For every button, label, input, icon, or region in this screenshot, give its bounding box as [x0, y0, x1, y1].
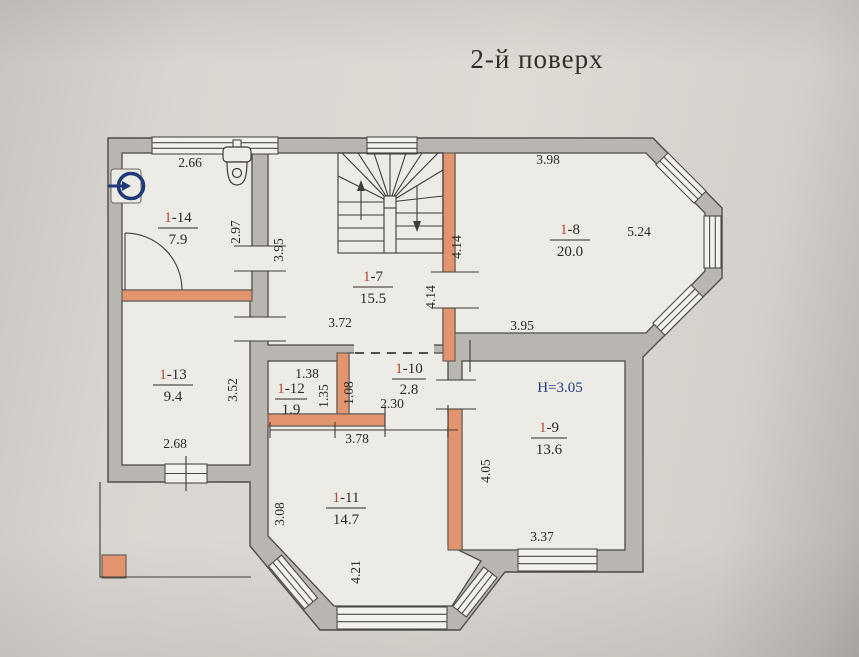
dim-room9-height: 4.05 — [478, 459, 493, 483]
svg-text:14.7: 14.7 — [333, 512, 360, 528]
svg-text:13.6: 13.6 — [536, 442, 563, 458]
dim-room13-width: 2.68 — [163, 436, 187, 451]
dim-room14-height: 2.97 — [228, 220, 243, 244]
dim-room12-height: 1.35 — [316, 384, 331, 408]
floor-plan-photo: 2-й поверх — [0, 0, 859, 657]
svg-text:2.8: 2.8 — [400, 382, 419, 398]
boiler-circle-arrow-icon — [108, 169, 144, 203]
dim-hall-height: 3.95 — [271, 238, 286, 262]
svg-text:1-14: 1-14 — [164, 210, 192, 226]
dim-room13-height: 3.52 — [225, 378, 240, 402]
svg-text:1.9: 1.9 — [282, 402, 301, 418]
dim-stair-wall-upper: 4.14 — [449, 235, 464, 259]
orange-wall-under-1-14 — [122, 290, 252, 301]
dim-room11-left-height: 3.08 — [272, 502, 287, 526]
dim-room8-width-top: 3.98 — [536, 152, 560, 167]
svg-text:1-8: 1-8 — [560, 222, 580, 238]
orange-wall-stairs-lower — [443, 307, 455, 361]
room-1-7 — [268, 153, 443, 345]
svg-text:1-11: 1-11 — [333, 490, 360, 506]
dim-room8-side: 5.24 — [627, 224, 651, 239]
dim-room11-height: 4.21 — [348, 560, 363, 584]
dim-room9-window-width: 3.37 — [530, 529, 554, 544]
svg-text:7.9: 7.9 — [169, 232, 188, 248]
dim-hall-width: 3.72 — [328, 315, 352, 330]
svg-text:1-10: 1-10 — [395, 361, 423, 377]
room-1-8 — [455, 153, 705, 333]
ceiling-height-note: H=3.05 — [537, 380, 583, 396]
svg-text:15.5: 15.5 — [360, 291, 386, 307]
floor-plan-canvas: 2-й поверх — [0, 0, 859, 657]
svg-text:1-9: 1-9 — [539, 420, 559, 436]
dim-room11-width: 3.78 — [345, 431, 369, 446]
dim-stair-wall-lower: 4.14 — [423, 285, 438, 309]
svg-text:1-12: 1-12 — [277, 381, 305, 397]
orange-pier-terrace — [102, 555, 126, 578]
dim-room8-width-bottom: 3.95 — [510, 318, 534, 333]
dim-room14-width: 2.66 — [178, 155, 202, 170]
dim-corridor10-width: 2.30 — [380, 396, 404, 411]
dim-room12-width: 1.38 — [295, 366, 319, 381]
svg-text:1-13: 1-13 — [159, 367, 187, 383]
orange-wall-1-11-right — [448, 408, 462, 550]
svg-text:1-7: 1-7 — [363, 269, 383, 285]
dim-corridor10-height: 1.08 — [341, 381, 356, 405]
page-title: 2-й поверх — [470, 44, 603, 74]
svg-text:20.0: 20.0 — [557, 244, 583, 260]
svg-text:9.4: 9.4 — [164, 389, 183, 405]
